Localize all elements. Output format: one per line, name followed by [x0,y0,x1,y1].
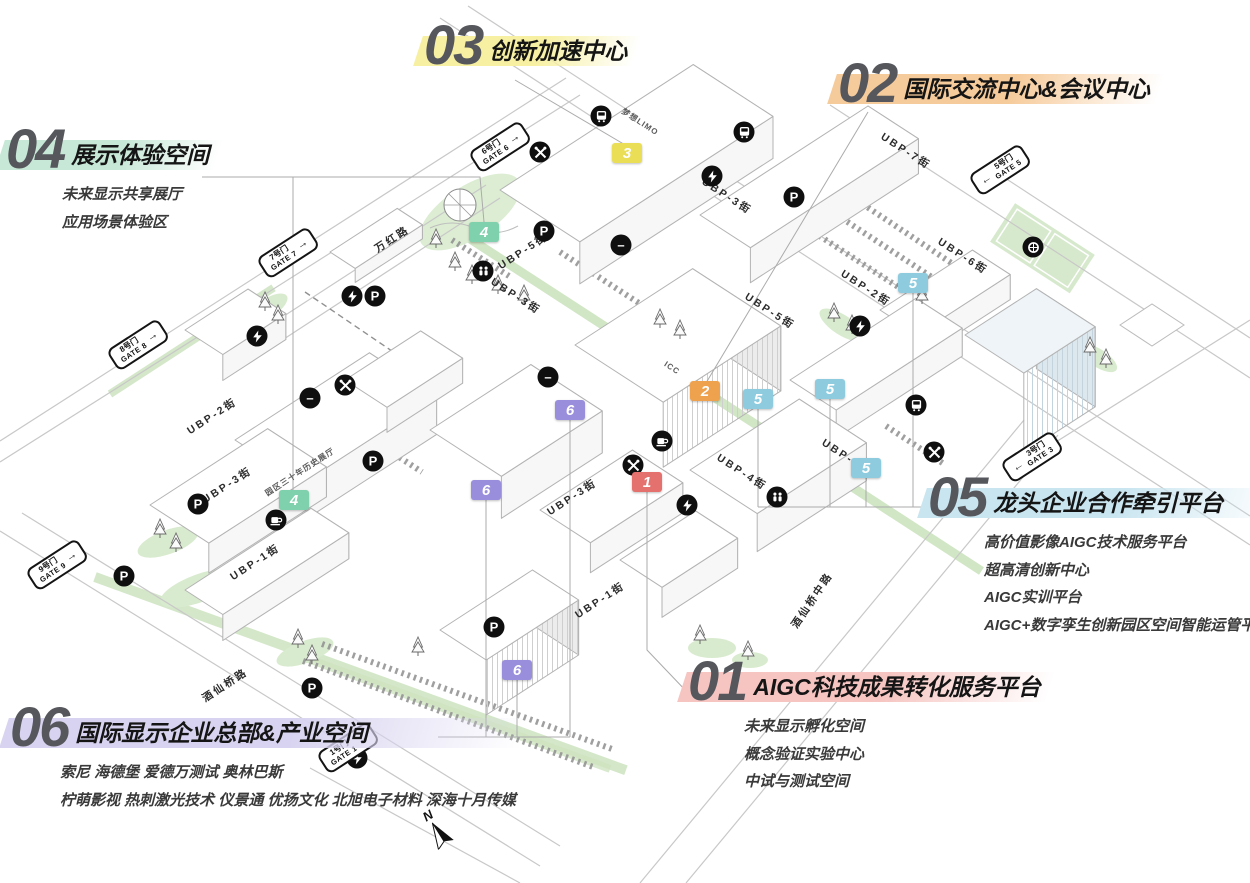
ev-charging-icon [850,316,871,337]
parking-icon: P [484,617,505,638]
parking-icon: P [365,286,386,307]
zone-04-marker[interactable]: 4 [469,222,499,242]
zone-detail-line: AIGC实训平台 [984,584,1250,612]
zone-detail-line: AIGC+数字孪生创新园区空间智能运管平台 [984,612,1250,640]
ev-charging-icon [702,166,723,187]
zone-03-label: 03创新加速中心 [424,22,627,68]
gate-arrow-icon: → [506,130,522,146]
zone-detail-line: 概念验证实验中心 [744,741,1041,769]
parking-icon: P [302,678,323,699]
zone-05-label: 05龙头企业合作牵引平台高价值影像AIGC技术服务平台超高清创新中心AIGC实训… [928,474,1250,640]
zone-title: 展示体验空间 [71,136,209,170]
gate-arrow-icon: → [294,236,310,252]
zone-title: 龙头企业合作牵引平台 [993,484,1223,518]
zone-number: 06 [10,704,68,750]
gate-arrow-icon: → [63,548,79,564]
zone-03-marker[interactable]: 3 [612,143,642,163]
metro-icon: – [611,235,632,256]
zone-detail-line: 高价值影像AIGC技术服务平台 [984,529,1250,557]
zone-number: 01 [688,658,746,704]
gate-arrow-icon: ← [1010,458,1026,474]
zone-detail-line: 柠萌影视 热刺激光技术 仪景通 优扬文化 北旭电子材料 深海十月传媒 [60,787,516,815]
ev-charging-icon [247,326,268,347]
zone-01-marker[interactable]: 1 [632,472,662,492]
zone-heading: 01AIGC科技成果转化服务平台 [688,658,1041,704]
parking-icon: P [114,566,135,587]
zone-heading: 05龙头企业合作牵引平台 [928,474,1250,520]
parking-icon: P [534,221,555,242]
zone-heading: 06国际显示企业总部&产业空间 [10,704,516,750]
zone-06-marker[interactable]: 6 [555,400,585,420]
metro-icon: – [538,367,559,388]
zone-detail-line: 中试与测试空间 [744,768,1041,796]
zone-02-marker[interactable]: 2 [690,381,720,401]
zone-details: 索尼 海德堡 爱德万测试 奥林巴斯柠萌影视 热刺激光技术 仪景通 优扬文化 北旭… [60,759,516,815]
zone-05-marker[interactable]: 5 [898,273,928,293]
restroom-icon [767,487,788,508]
zone-06-marker[interactable]: 6 [471,480,501,500]
zone-details: 未来显示共享展厅应用场景体验区 [62,181,209,237]
zone-title: 国际显示企业总部&产业空间 [75,714,368,748]
dining-icon [335,375,356,396]
parking-icon: P [363,451,384,472]
zone-details: 高价值影像AIGC技术服务平台超高清创新中心AIGC实训平台AIGC+数字孪生创… [984,529,1250,640]
parking-icon: P [784,187,805,208]
cafe-icon [652,431,673,452]
zone-number: 05 [928,474,986,520]
restroom-icon [473,261,494,282]
zone-heading: 03创新加速中心 [424,22,627,68]
zone-06-marker[interactable]: 6 [502,660,532,680]
sports-icon [1023,237,1044,258]
zone-05-marker[interactable]: 5 [743,389,773,409]
zone-detail-line: 未来显示共享展厅 [62,181,209,209]
zone-number: 03 [424,22,482,68]
gate-arrow-icon: ← [978,171,994,187]
zone-05-marker[interactable]: 5 [815,379,845,399]
zone-04-label: 04展示体验空间未来显示共享展厅应用场景体验区 [6,126,209,236]
zone-detail-line: 未来显示孵化空间 [744,713,1041,741]
bus-icon [734,122,755,143]
zone-06-label: 06国际显示企业总部&产业空间索尼 海德堡 爱德万测试 奥林巴斯柠萌影视 热刺激… [10,704,516,814]
gate-arrow-icon: → [144,328,160,344]
zone-details: 未来显示孵化空间概念验证实验中心中试与测试空间 [744,713,1041,796]
ev-charging-icon [677,495,698,516]
zone-number: 02 [838,60,896,106]
parking-icon: P [188,494,209,515]
bus-icon [591,106,612,127]
campus-map: 万红路UBP-5街UBP-3街UBP-3街UBP-7街UBP-6街UBP-2街U… [0,0,1250,883]
zone-04-marker[interactable]: 4 [279,490,309,510]
zone-heading: 04展示体验空间 [6,126,209,172]
zone-detail-line: 应用场景体验区 [62,209,209,237]
zone-number: 04 [6,126,64,172]
zone-02-label: 02国际交流中心&会议中心 [838,60,1150,106]
zone-01-label: 01AIGC科技成果转化服务平台未来显示孵化空间概念验证实验中心中试与测试空间 [688,658,1041,796]
zone-heading: 02国际交流中心&会议中心 [838,60,1150,106]
dining-icon [530,142,551,163]
metro-icon: – [300,388,321,409]
zone-title: 创新加速中心 [489,32,627,66]
zone-detail-line: 超高清创新中心 [984,557,1250,585]
zone-title: AIGC科技成果转化服务平台 [753,668,1041,702]
dining-icon [924,442,945,463]
zone-title: 国际交流中心&会议中心 [903,70,1150,104]
cafe-icon [266,510,287,531]
zone-detail-line: 索尼 海德堡 爱德万测试 奥林巴斯 [60,759,516,787]
ev-charging-icon [342,286,363,307]
bus-icon [906,395,927,416]
zone-05-marker[interactable]: 5 [851,458,881,478]
